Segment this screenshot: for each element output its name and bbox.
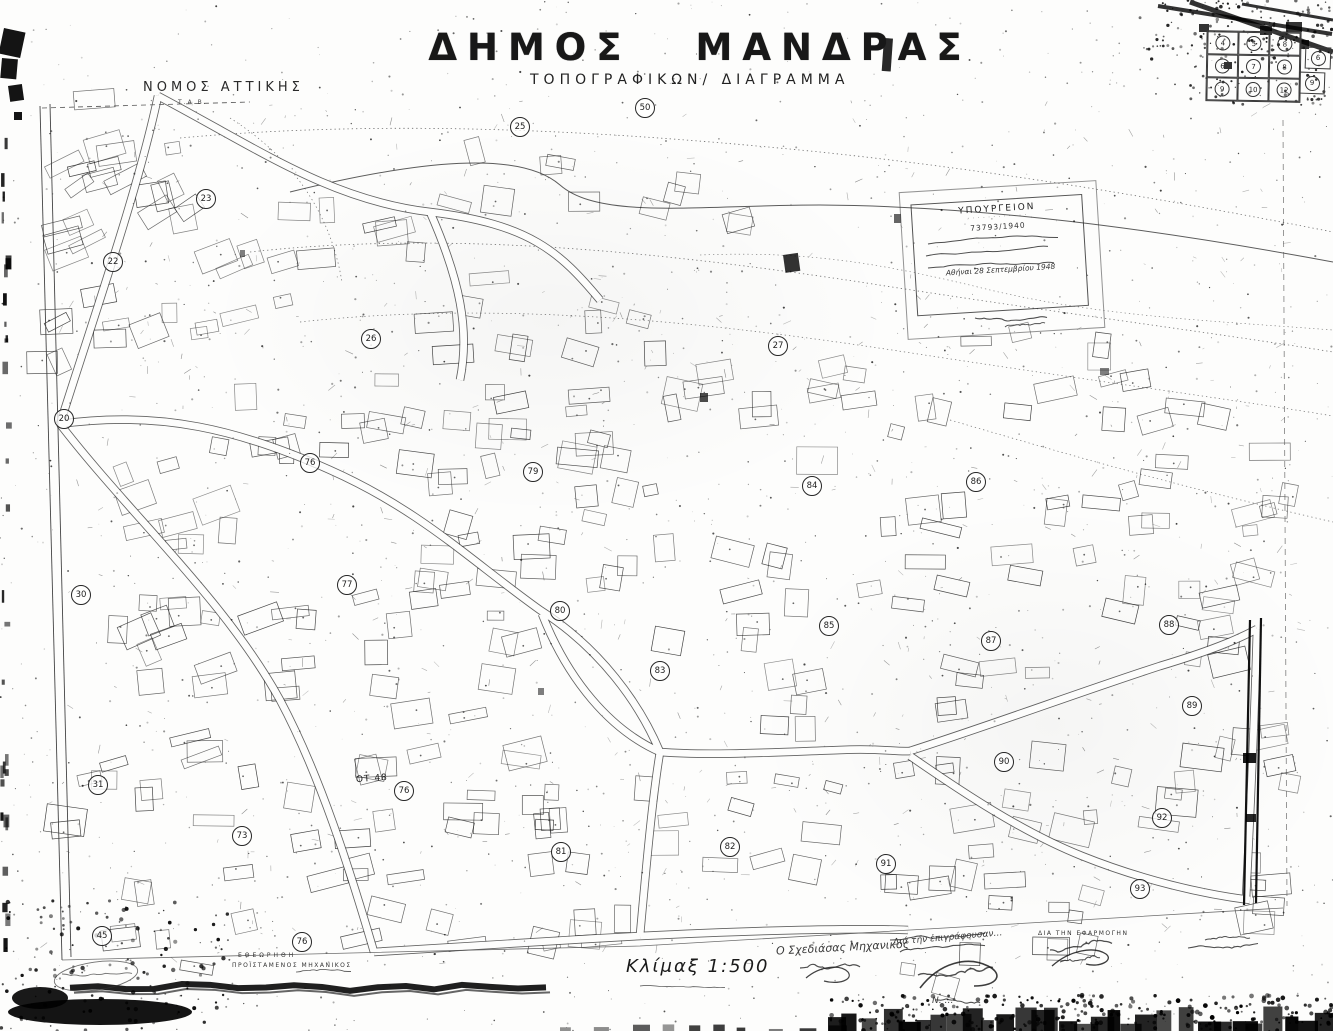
block-number-circle: 91: [876, 854, 896, 874]
block-number-circle: 76: [394, 781, 414, 801]
block-number-circle: 89: [1182, 696, 1202, 716]
index-grid-number: 10: [1245, 82, 1260, 97]
block-number-circle: 83: [650, 661, 670, 681]
approval-caption: ΔΙΑ ΤΗΝ ΕΦΑΡΜΟΓΗΝ: [1038, 930, 1128, 937]
block-number-circle: 92: [1152, 808, 1172, 828]
index-grid-cell: 12: [1268, 78, 1299, 102]
block-number-circle: 80: [550, 601, 570, 621]
stray-linework: [40, 101, 1305, 965]
block-number-circle: 31: [88, 775, 108, 795]
block-number-circle: 90: [994, 752, 1014, 772]
index-grid-cell: 6: [1207, 54, 1238, 78]
title-word-1: ΔΗΜΟΣ: [428, 26, 631, 69]
block-number-circle: 86: [966, 472, 986, 492]
index-grid-number: 12: [1276, 82, 1291, 97]
block-number-circle: 84: [802, 476, 822, 496]
index-grid-number: 4: [1215, 35, 1230, 50]
index-grid-number: 9: [1304, 75, 1320, 91]
index-grid-cell: 8: [1269, 55, 1300, 79]
index-grid-cell: 5: [1238, 32, 1269, 56]
map-title: ΔΗΜΟΣ ΜΑΝΔΡΑΣ: [470, 26, 930, 69]
index-grid-cell: 8: [1269, 32, 1300, 56]
index-grid-number: 6: [1215, 58, 1230, 73]
block-number-circle: 30: [71, 585, 91, 605]
index-grid-number: 5: [1246, 36, 1261, 51]
index-grid-cell: 10: [1237, 78, 1268, 102]
index-grid-number: 7: [1246, 59, 1261, 74]
stamp-date: Αθήναι 28 Σεπτεμβρίου 1948: [921, 260, 1079, 279]
block-number-circle: 26: [361, 329, 381, 349]
block-number-circle: 79: [523, 462, 543, 482]
contour-lines: [180, 118, 1333, 522]
index-grid-number: 9: [1214, 81, 1229, 96]
map-linework: [0, 0, 1333, 1031]
block-number-circle: 81: [551, 842, 571, 862]
region-sublabel: Τ.Α.Β.: [178, 99, 208, 106]
index-grid-cell: 4: [1207, 31, 1238, 55]
sheet-index-side-cell: 6: [1305, 47, 1332, 70]
block-number-circle: 82: [720, 837, 740, 857]
block-number-circle: 76: [300, 453, 320, 473]
title-word-2: ΜΑΝΔΡΑΣ: [696, 26, 972, 69]
region-label: ΝΟΜΟΣ ΑΤΤΙΚΗΣ: [143, 80, 304, 95]
sheet-index-side-cell: 9: [1299, 72, 1326, 95]
signer-name: Ν. …: [932, 996, 953, 1006]
handwriting-marks: [52, 236, 1258, 1003]
block-number-circle: 20: [54, 409, 74, 429]
scale-label: Κλίμαξ 1:500: [626, 956, 770, 977]
review-stamp-line1: ΕΘΕΩΡΗΘΗ: [238, 952, 296, 959]
sheet-index-grid: 45867891012: [1205, 30, 1301, 103]
scanned-map-sheet: ΝΟΜΟΣ ΑΤΤΙΚΗΣ Τ.Α.Β. ΔΗΜΟΣ ΜΑΝΔΡΑΣ ΤΟΠΟΓ…: [0, 0, 1333, 1031]
approval-stamp-outer: ΥΠΟΥΡΓΕΙΟΝ · · · · · · · · · · · · 73793…: [899, 180, 1106, 340]
block-number-circle: 27: [768, 336, 788, 356]
block-number-circle: 88: [1159, 615, 1179, 635]
block-number-circle: 45: [92, 926, 112, 946]
block-number-circle: 85: [819, 616, 839, 636]
block-number-circle: 73: [232, 826, 252, 846]
map-subtitle: ΤΟΠΟΓΡΑΦΙΚΩΝ/ ΔΙΑΓΡΑΜΜΑ: [530, 72, 849, 88]
index-grid-number: 8: [1277, 36, 1292, 51]
approval-stamp: ΥΠΟΥΡΓΕΙΟΝ · · · · · · · · · · · · 73793…: [910, 194, 1089, 316]
index-grid-cell: 9: [1206, 77, 1237, 101]
block-number-circle: 76: [292, 932, 312, 952]
index-grid-cell: 7: [1238, 55, 1269, 79]
index-grid-number: 8: [1277, 59, 1292, 74]
index-grid-number: 6: [1310, 50, 1326, 66]
review-stamp-line2: ΠΡΟΪΣΤΑΜΕΝΟΣ ΜΗΧΑΝΙΚΟΣ: [232, 962, 352, 969]
block-number-circle: 87: [981, 631, 1001, 651]
block-number-circle: 25: [510, 117, 530, 137]
block-number-circle: 77: [337, 575, 357, 595]
sheet-frame: [40, 102, 1287, 960]
block-number-circle: 22: [103, 252, 123, 272]
block-number-circle: 93: [1130, 879, 1150, 899]
block-number-circle: 50: [635, 98, 655, 118]
block-number-circle: 23: [196, 189, 216, 209]
